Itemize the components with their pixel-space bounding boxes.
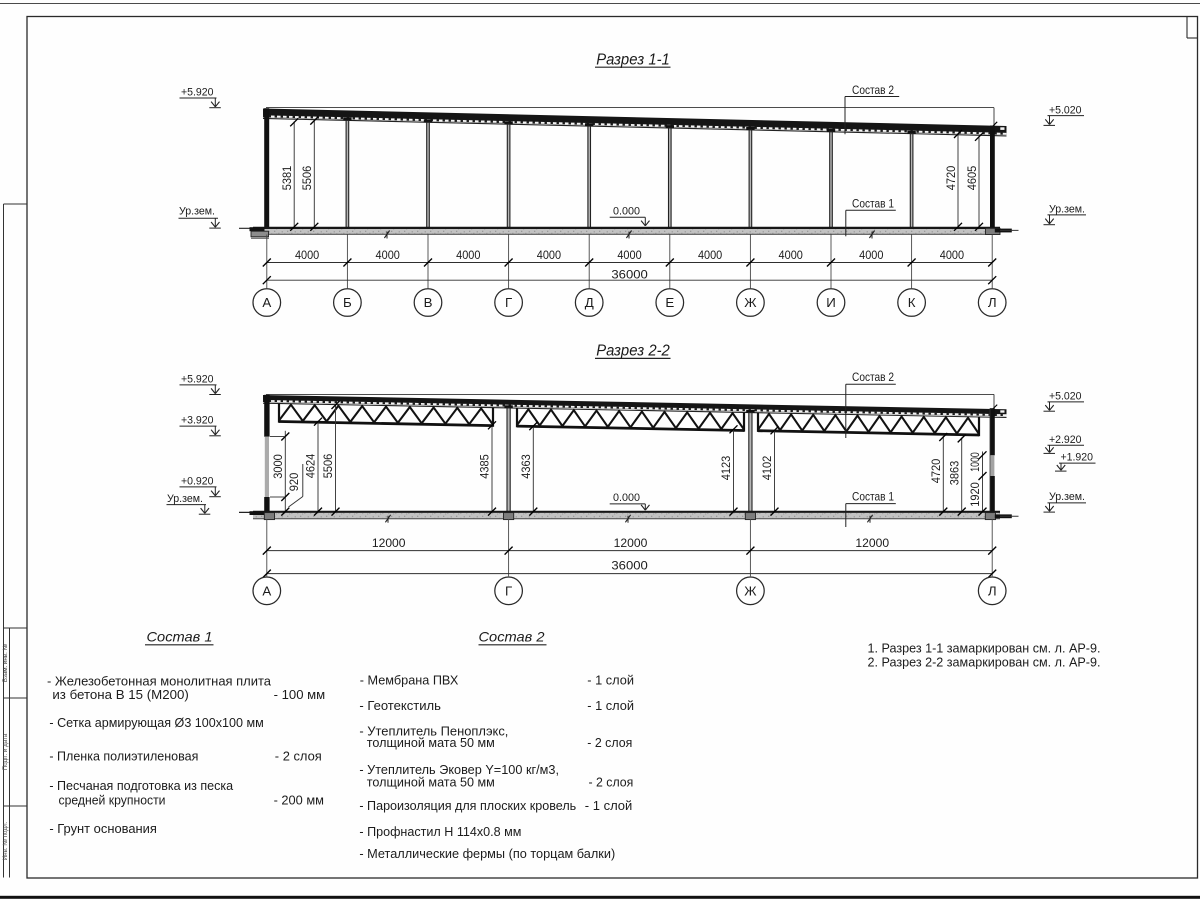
svg-text:1920: 1920 (968, 482, 982, 507)
svg-text:1000: 1000 (968, 452, 982, 472)
svg-text:4605: 4605 (965, 165, 979, 190)
svg-text:1. Разрез 1-1 замаркирован см.: 1. Разрез 1-1 замаркирован см. л. АР-9. (868, 641, 1101, 656)
svg-text:36000: 36000 (611, 558, 648, 572)
svg-text:12000: 12000 (372, 536, 406, 550)
svg-text:- 100 мм: - 100 мм (274, 688, 326, 702)
svg-text:В: В (424, 295, 433, 310)
svg-text:Ж: Ж (744, 584, 757, 599)
svg-text:4000: 4000 (456, 248, 481, 262)
svg-text:Ж: Ж (744, 295, 757, 310)
svg-text:4000: 4000 (779, 248, 804, 262)
svg-text:- Песчаная подготовка из песка: - Песчаная подготовка из песка (49, 779, 233, 793)
svg-text:4000: 4000 (295, 248, 320, 262)
svg-text:- Геотекстиль: - Геотекстиль (359, 699, 441, 713)
svg-text:36000: 36000 (611, 267, 648, 281)
svg-text:К: К (908, 295, 916, 310)
svg-text:4363: 4363 (519, 454, 533, 479)
svg-text:5506: 5506 (300, 165, 314, 190)
svg-text:- 200 мм: - 200 мм (274, 794, 324, 808)
svg-text:Ур.зем.: Ур.зем. (179, 206, 215, 218)
svg-text:А: А (262, 584, 271, 599)
svg-text:Состав 1: Состав 1 (852, 197, 894, 210)
svg-text:- Пароизоляция для плоских кро: - Пароизоляция для плоских кровель (359, 799, 576, 813)
svg-text:Инв. № подл.: Инв. № подл. (2, 821, 9, 860)
svg-text:- 1 слой: - 1 слой (587, 699, 634, 713)
svg-text:средней крупности: средней крупности (59, 794, 166, 808)
svg-text:Подп. и дата: Подп. и дата (2, 733, 9, 770)
svg-text:- Железобетонная монолитная п: - Железобетонная монолитная плита (47, 675, 271, 689)
svg-text:Д: Д (585, 295, 594, 310)
svg-text:- Грунт основания: - Грунт основания (49, 822, 156, 836)
svg-text:И: И (826, 295, 836, 310)
svg-text:Ур.зем.: Ур.зем. (167, 493, 203, 505)
svg-text:- Сетка армирующая Ø3 100х100: - Сетка армирующая Ø3 100х100 мм (49, 716, 263, 730)
svg-text:- 2 слоя: - 2 слоя (589, 776, 634, 790)
svg-text:+5.020: +5.020 (1049, 390, 1082, 402)
svg-text:4102: 4102 (760, 456, 774, 481)
svg-text:4000: 4000 (698, 248, 723, 262)
svg-text:Ур.зем.: Ур.зем. (1049, 491, 1085, 503)
svg-text:Состав 2: Состав 2 (479, 629, 545, 644)
svg-text:4720: 4720 (929, 458, 943, 483)
svg-text:Г: Г (505, 584, 512, 599)
svg-text:0.000: 0.000 (613, 206, 640, 218)
svg-text:+1.920: +1.920 (1061, 452, 1094, 464)
svg-text:920: 920 (287, 472, 301, 491)
svg-text:5506: 5506 (321, 453, 335, 478)
svg-text:- Пленка полиэтиленовая: - Пленка полиэтиленовая (49, 750, 198, 764)
svg-text:2. Разрез 2-2 замаркирован см.: 2. Разрез 2-2 замаркирован см. л. АР-9. (868, 654, 1101, 669)
svg-text:+0.920: +0.920 (181, 475, 214, 487)
svg-text:- 2 слоя: - 2 слоя (587, 736, 632, 750)
svg-text:толщиной мата 50 мм: толщиной мата 50 мм (367, 736, 495, 750)
svg-text:+5.020: +5.020 (1049, 104, 1082, 116)
svg-text:3863: 3863 (947, 460, 961, 485)
svg-text:- 2 слоя: - 2 слоя (275, 750, 322, 764)
svg-text:- Профнастил Н 114х0.8 мм: - Профнастил Н 114х0.8 мм (359, 825, 521, 839)
svg-text:из бетона В 15 (М200): из бетона В 15 (М200) (52, 688, 188, 702)
svg-text:Г: Г (505, 295, 512, 310)
svg-text:4123: 4123 (719, 455, 733, 480)
svg-text:Взам. инв. №: Взам. инв. № (2, 643, 9, 682)
svg-text:толщиной мата 50 мм: толщиной мата 50 мм (367, 776, 495, 790)
svg-text:+5.920: +5.920 (181, 86, 214, 98)
svg-text:4000: 4000 (376, 248, 401, 262)
svg-text:4000: 4000 (537, 248, 562, 262)
svg-text:0.000: 0.000 (613, 492, 640, 504)
svg-text:Л: Л (988, 584, 997, 599)
svg-text:Состав 1: Состав 1 (147, 629, 213, 644)
svg-text:Разрез 1-1: Разрез 1-1 (596, 52, 670, 69)
svg-text:- 1 слой: - 1 слой (587, 673, 634, 687)
svg-text:Состав 1: Состав 1 (852, 490, 894, 503)
svg-text:Состав 2: Состав 2 (852, 371, 894, 384)
svg-text:- Мембрана ПВХ: - Мембрана ПВХ (360, 673, 459, 687)
svg-text:4000: 4000 (859, 248, 884, 262)
svg-text:4624: 4624 (304, 453, 318, 478)
svg-text:4385: 4385 (478, 454, 492, 479)
svg-text:Л: Л (988, 295, 997, 310)
svg-text:5381: 5381 (280, 166, 294, 191)
svg-text:12000: 12000 (855, 536, 889, 550)
svg-text:4720: 4720 (944, 165, 958, 190)
svg-text:12000: 12000 (614, 536, 648, 550)
svg-text:- 1 слой: - 1 слой (585, 799, 633, 813)
svg-text:+5.920: +5.920 (181, 373, 214, 385)
svg-text:+3.920: +3.920 (181, 414, 214, 426)
svg-text:+2.920: +2.920 (1049, 434, 1082, 446)
svg-text:Разрез 2-2: Разрез 2-2 (596, 343, 670, 360)
svg-text:Б: Б (343, 295, 352, 310)
svg-text:Ур.зем.: Ур.зем. (1049, 203, 1085, 215)
svg-text:3000: 3000 (271, 454, 285, 479)
svg-text:Е: Е (665, 295, 674, 310)
svg-text:4000: 4000 (617, 248, 642, 262)
svg-text:Состав 2: Состав 2 (852, 84, 894, 97)
svg-text:- Металлические фермы (по торц: - Металлические фермы (по торцам балки) (359, 847, 615, 861)
svg-text:4000: 4000 (940, 248, 965, 262)
svg-text:А: А (262, 295, 271, 310)
